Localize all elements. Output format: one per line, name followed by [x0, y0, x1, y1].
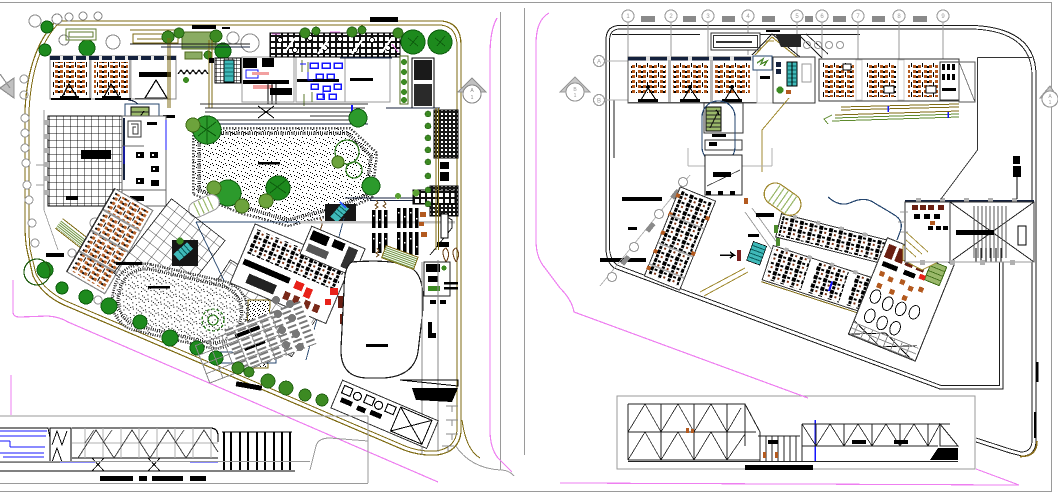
svg-text:1: 1 [471, 95, 474, 101]
svg-text:A: A [597, 60, 601, 66]
svg-text:1: 1 [574, 93, 577, 99]
svg-text:1: 1 [1049, 100, 1052, 106]
svg-text:B: B [597, 99, 601, 105]
